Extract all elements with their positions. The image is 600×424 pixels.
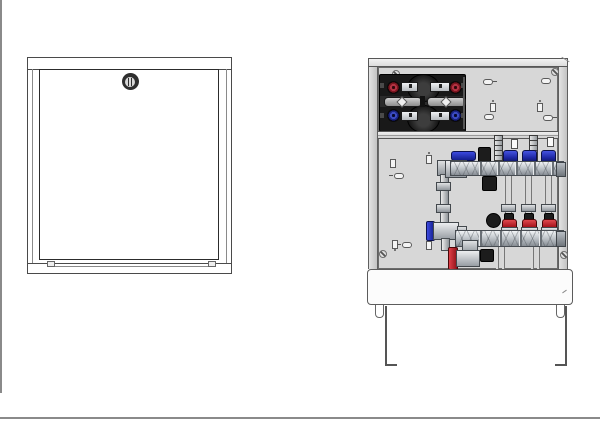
hole-mark [428, 152, 430, 154]
flow-meter-tube [494, 135, 503, 164]
mounting-hole [537, 103, 543, 112]
loop-tube-pair [496, 247, 505, 269]
mounting-hole [394, 173, 404, 179]
mount-bracket [380, 83, 384, 88]
meter-body [401, 82, 418, 92]
mount-bracket [380, 113, 384, 118]
mounting-hole [490, 103, 496, 112]
door-lock[interactable] [122, 73, 139, 90]
screw [560, 251, 568, 259]
hole-mark [553, 117, 557, 118]
frame-right-inner-line [226, 69, 227, 263]
drain-valve-black [480, 249, 494, 262]
manifold-end-cap [556, 162, 566, 177]
side-wall-left [368, 67, 378, 269]
mounting-hole [483, 79, 493, 85]
lock-slot-left [128, 78, 129, 86]
meter-body [401, 111, 418, 121]
edge-highlight [463, 77, 465, 129]
leg-left [385, 306, 387, 364]
hole-mark [394, 249, 396, 251]
mounting-hole [426, 241, 432, 250]
meter-body [430, 111, 450, 121]
loop-tube-pair [531, 247, 540, 269]
door-foot-left [47, 261, 55, 267]
side-wall-stub-right [556, 305, 565, 318]
bottom-plinth [367, 269, 573, 305]
mounting-hole [511, 139, 518, 149]
blue-handwheel[interactable] [387, 109, 400, 122]
manifold-end-cap [556, 231, 566, 247]
flow-manifold [450, 161, 564, 176]
drawing-canvas [0, 0, 600, 424]
page-border-bottom [0, 417, 600, 419]
black-handwheel[interactable] [486, 213, 501, 228]
page-border-left [0, 0, 2, 393]
hole-mark [492, 100, 494, 102]
foot-right [555, 364, 567, 366]
hole-mark [389, 175, 393, 176]
mounting-hole [390, 159, 396, 168]
tube-union [521, 204, 536, 212]
red-handwheel[interactable] [449, 81, 462, 94]
lock-slot-right [131, 78, 132, 86]
side-wall-stub-left [375, 305, 384, 318]
heat-meter-assembly [379, 74, 466, 132]
mounting-hole [402, 242, 412, 248]
frame-left-inner-line [32, 69, 33, 263]
hole-mark [539, 100, 541, 102]
door-foot-right [208, 261, 216, 267]
blue-handwheel[interactable] [449, 109, 462, 122]
cabinet-door[interactable] [39, 69, 219, 260]
drain-valve-body[interactable] [456, 250, 480, 267]
riser-union [436, 204, 451, 213]
closed-cabinet [27, 57, 232, 274]
cabinet-top-rail [368, 58, 568, 67]
drain-valve-black [482, 176, 497, 191]
hole-mark [397, 244, 401, 245]
riser-union [436, 182, 451, 191]
mounting-hole [541, 78, 551, 84]
open-cabinet [367, 58, 573, 370]
mounting-hole [426, 155, 432, 164]
screw [379, 250, 387, 258]
bottom-rail-line [28, 263, 231, 264]
meter-body [430, 82, 450, 92]
hole-mark [493, 81, 497, 82]
screw [551, 68, 559, 76]
center-block [420, 96, 425, 107]
mounting-hole [543, 115, 553, 121]
leg-right [565, 306, 567, 364]
mounting-hole [484, 114, 494, 120]
mounting-hole [547, 137, 554, 147]
tube-union [501, 204, 516, 212]
bottom-inner-line [50, 266, 209, 267]
foot-left [385, 364, 397, 366]
tube-union [541, 204, 556, 212]
red-handwheel[interactable] [387, 81, 400, 94]
